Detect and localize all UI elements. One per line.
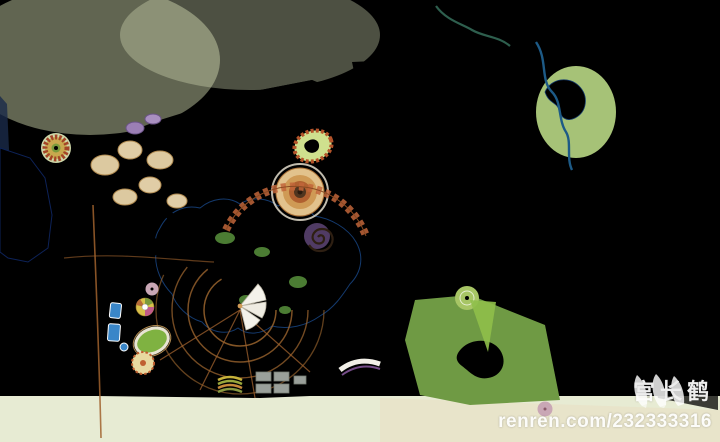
site-plan-drawing bbox=[0, 0, 720, 442]
color-plaza-icon bbox=[136, 298, 154, 316]
master-plan-screenshot: 宫长鹤 renren.com/232333316 bbox=[0, 0, 720, 442]
gateway-roundabout-icon bbox=[41, 133, 71, 163]
radial-garden-icon bbox=[132, 352, 154, 374]
